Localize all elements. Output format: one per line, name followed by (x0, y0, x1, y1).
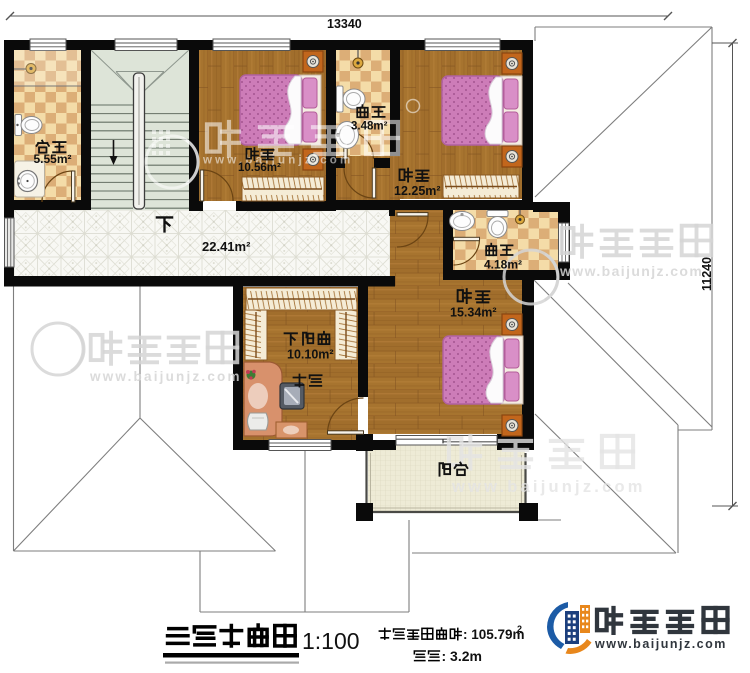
svg-text:: 105.79m: : 105.79m (463, 627, 525, 642)
svg-text:10.10m²: 10.10m² (287, 348, 334, 362)
svg-text:12.25m²: 12.25m² (394, 184, 441, 198)
svg-text:3.48m²: 3.48m² (351, 121, 388, 133)
svg-text:13340: 13340 (327, 17, 362, 31)
svg-text:22.41m²: 22.41m² (202, 239, 251, 254)
svg-text:www.baijunjz.com: www.baijunjz.com (559, 263, 703, 279)
svg-text:www.baijunjz.com: www.baijunjz.com (89, 369, 242, 384)
svg-text:www.baijunjz.com: www.baijunjz.com (451, 478, 646, 496)
svg-text:10.56m²: 10.56m² (238, 162, 281, 174)
svg-text:11240: 11240 (700, 257, 714, 291)
svg-text:4.18m²: 4.18m² (484, 258, 522, 272)
svg-text:5.55m²: 5.55m² (34, 152, 72, 166)
svg-text:www.baijunjz.com: www.baijunjz.com (594, 637, 727, 651)
svg-text:2: 2 (517, 624, 522, 634)
svg-text:1:100: 1:100 (302, 628, 360, 654)
svg-text:15.34m²: 15.34m² (450, 306, 497, 320)
svg-text:: 3.2m: : 3.2m (442, 648, 482, 664)
